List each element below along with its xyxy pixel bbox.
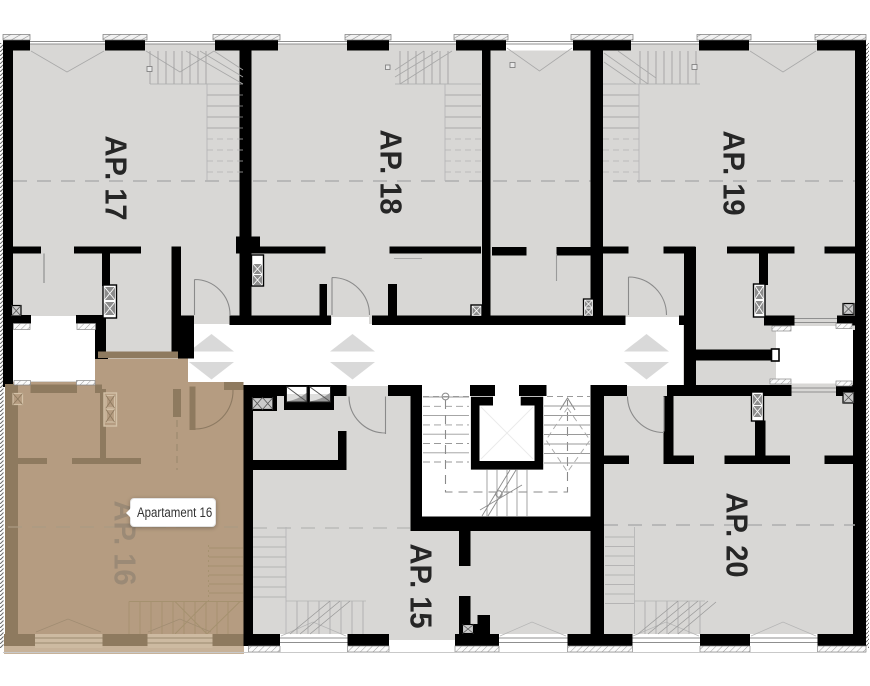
svg-text:AP. 20: AP. 20 [720,493,755,578]
svg-text:AP. 15: AP. 15 [404,544,439,629]
svg-text:AP. 18: AP. 18 [374,130,409,215]
svg-text:AP. 17: AP. 17 [99,136,134,221]
svg-text:AP. 19: AP. 19 [717,131,752,216]
